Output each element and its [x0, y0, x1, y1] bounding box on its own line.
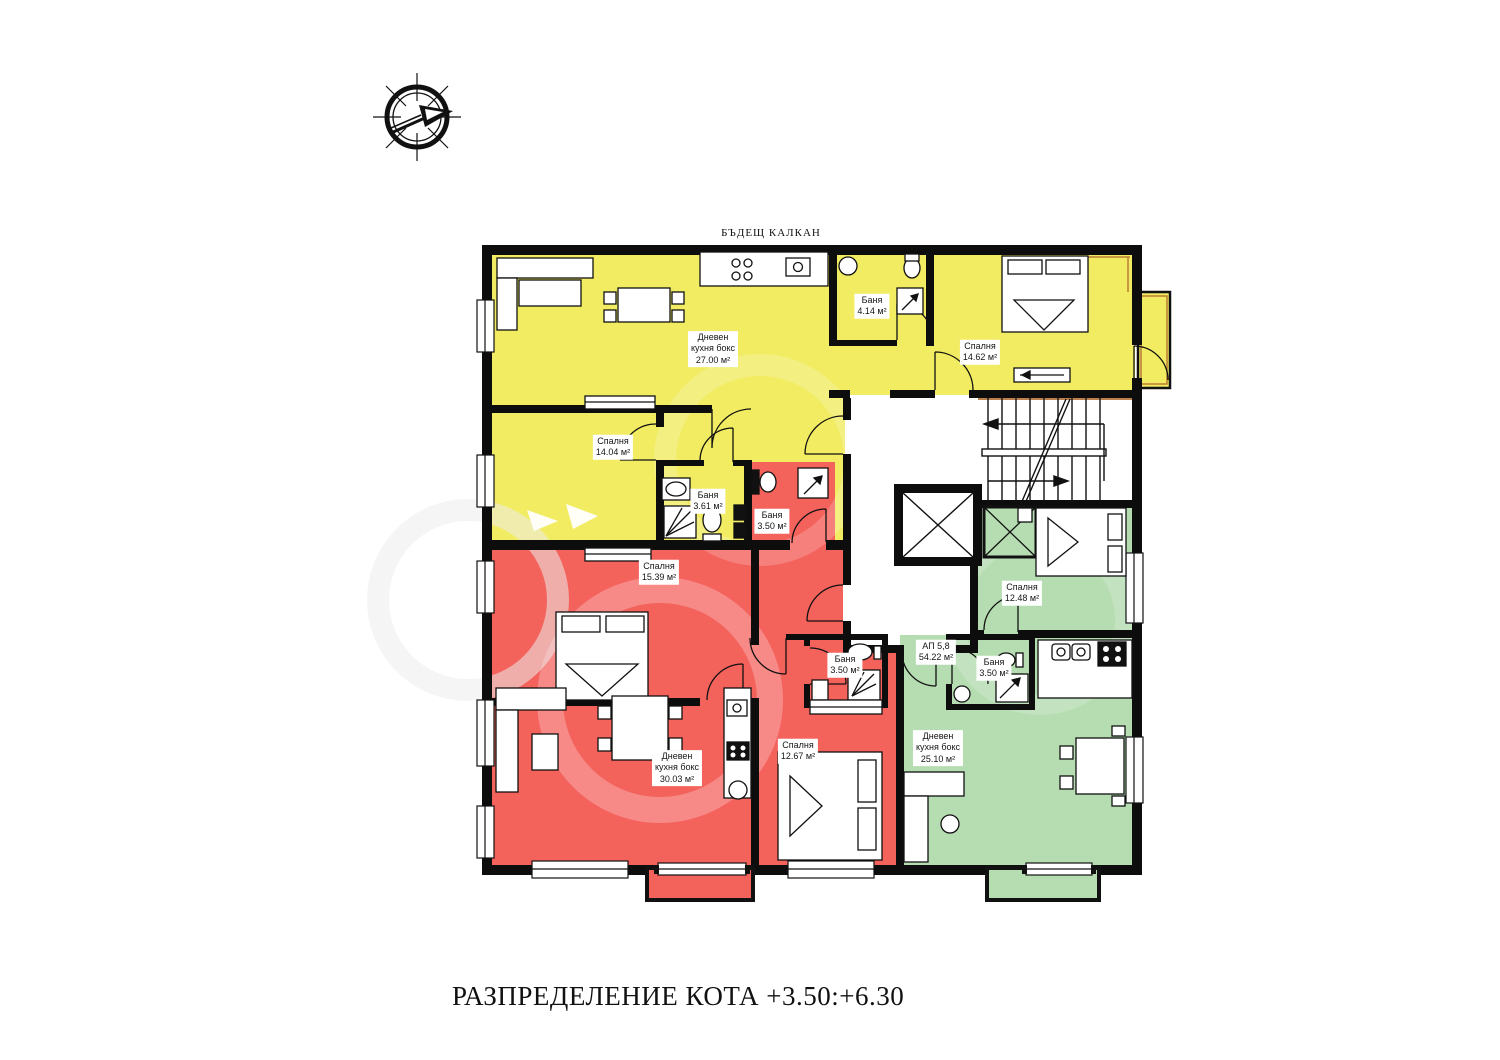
- room-label-line: 3.50 м²: [757, 521, 786, 532]
- room-label-line: Спалня: [1005, 582, 1039, 593]
- balcony-green: [987, 863, 1099, 900]
- room-label-line: 54.22 м²: [919, 652, 953, 663]
- room-label-line: Спалня: [781, 740, 815, 751]
- elevator-shaft: [894, 484, 982, 566]
- room-label-line: 15.39 м²: [642, 572, 676, 583]
- room-label-red-bedroom-2: Спалня 12.67 м²: [778, 739, 818, 764]
- room-label-line: Дневен: [916, 731, 960, 742]
- room-label-line: АП 5,8: [919, 641, 953, 652]
- room-label-line: Дневен: [691, 332, 735, 343]
- balcony-red: [647, 863, 753, 900]
- room-label-line: 27.00 м²: [691, 355, 735, 366]
- room-label-line: кухня бокс: [691, 343, 735, 354]
- room-label-yellow-living: Дневен кухня бокс 27.00 м²: [688, 331, 738, 367]
- top-wall-note: БЪДЕЩ КАЛКАН: [721, 227, 821, 239]
- staircase: [982, 398, 1106, 506]
- room-label-green-living: Дневен кухня бокс 25.10 м²: [913, 730, 963, 766]
- room-label-line: 3.50 м²: [830, 665, 859, 676]
- room-label-yellow-bath-2: Баня 3.61 м²: [690, 489, 725, 514]
- room-label-line: Баня: [757, 510, 786, 521]
- room-label-line: кухня бокс: [655, 762, 699, 773]
- room-label-line: кухня бокс: [916, 742, 960, 753]
- room-label-red-bedroom-1: Спалня 15.39 м²: [639, 560, 679, 585]
- room-label-red-living: Дневен кухня бокс 30.03 м²: [652, 750, 702, 786]
- room-label-line: Дневен: [655, 751, 699, 762]
- room-label-line: Спалня: [596, 436, 630, 447]
- room-label-green-bedroom: Спалня 12.48 м²: [1002, 581, 1042, 606]
- room-label-line: Баня: [979, 657, 1008, 668]
- room-label-line: Спалня: [963, 341, 997, 352]
- room-label-line: 4.14 м²: [857, 306, 886, 317]
- room-label-line: 25.10 м²: [916, 754, 960, 765]
- room-label-line: 30.03 м²: [655, 774, 699, 785]
- room-label-line: 14.62 м²: [963, 352, 997, 363]
- room-label-yellow-bath-1: Баня 4.14 м²: [854, 294, 889, 319]
- room-label-line: Спалня: [642, 561, 676, 572]
- room-label-line: 3.50 м²: [979, 668, 1008, 679]
- room-label-line: 3.61 м²: [693, 501, 722, 512]
- room-label-line: 12.67 м²: [781, 751, 815, 762]
- kitchen-red: [724, 688, 751, 799]
- room-label-yellow-bedroom-right: Спалня 14.62 м²: [960, 340, 1000, 365]
- room-label-green-bath: Баня 3.50 м²: [976, 656, 1011, 681]
- room-label-line: Баня: [857, 295, 886, 306]
- kitchen-green: [1038, 640, 1132, 698]
- room-label-line: Баня: [830, 654, 859, 665]
- floor-plan-drawing: [0, 0, 1500, 1060]
- room-label-red-bath-upper: Баня 3.50 м²: [754, 509, 789, 534]
- room-label-line: Баня: [693, 490, 722, 501]
- kitchen-counter-yellow: [700, 252, 828, 286]
- room-label-red-bath-lower: Баня 3.50 м²: [827, 653, 862, 678]
- north-compass-icon: [373, 73, 461, 161]
- floor-plan-sheet: БЪДЕЩ КАЛКАН Дневен кухня бокс 27.00 м² …: [0, 0, 1500, 1060]
- room-label-green-apartment: АП 5,8 54.22 м²: [916, 640, 956, 665]
- room-label-line: 14.04 м²: [596, 447, 630, 458]
- room-label-line: 12.48 м²: [1005, 593, 1039, 604]
- room-label-yellow-bedroom-left: Спалня 14.04 м²: [593, 435, 633, 460]
- wardrobe-yellow: [585, 396, 655, 409]
- sheet-title: РАЗПРЕДЕЛЕНИЕ КОТА +3.50:+6.30: [452, 981, 904, 1012]
